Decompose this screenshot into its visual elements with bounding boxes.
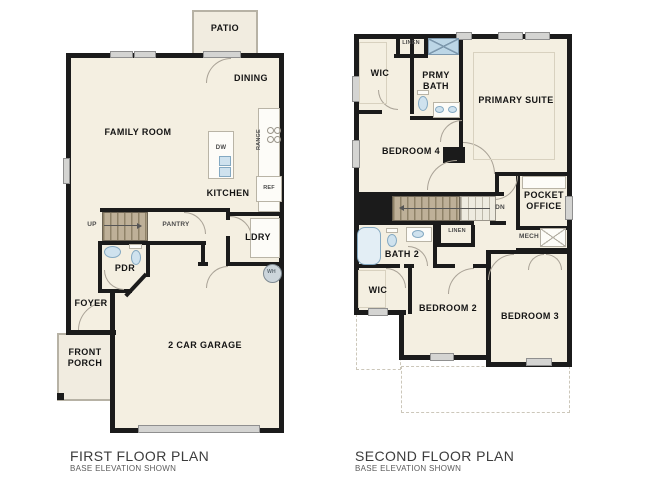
room-label-bath-2: BATH 2 xyxy=(378,249,426,260)
dashed-footprint xyxy=(356,314,401,370)
room-label-wic-bedroom2: WIC xyxy=(360,285,396,296)
room-label-linen-hall: LINEN xyxy=(440,229,474,235)
wall xyxy=(490,221,506,225)
room-label-mech: MECH xyxy=(516,234,542,241)
second-floor-caption-subtitle: BASE ELEVATION SHOWN xyxy=(355,464,461,473)
window-marker xyxy=(352,140,360,168)
sink-icon xyxy=(448,106,457,113)
wall xyxy=(433,225,437,268)
wall xyxy=(394,54,428,58)
window-marker xyxy=(498,32,523,40)
pocket-office-desk xyxy=(522,176,566,189)
toilet-icon xyxy=(418,96,428,111)
wall xyxy=(354,110,382,114)
room-label-wic-primary: WIC xyxy=(362,68,398,79)
room-label-linen-upper: LINEN xyxy=(397,41,425,47)
primary-suite-inset xyxy=(473,52,555,160)
sink-icon xyxy=(412,230,424,238)
room-label-bedroom-3: BEDROOM 3 xyxy=(490,311,570,322)
wall xyxy=(437,264,455,268)
stairs-direction-label: DN xyxy=(492,205,508,212)
room-label-primary-suite: PRIMARY SUITE xyxy=(466,95,566,106)
second-floor-caption-title: SECOND FLOOR PLAN xyxy=(355,448,514,464)
stair-void xyxy=(356,192,392,224)
room-label-pocket-office: POCKET OFFICE xyxy=(518,190,570,212)
dashed-footprint xyxy=(401,366,570,413)
room-label-bedroom-4: BEDROOM 4 xyxy=(366,146,456,157)
room-label-bedroom-2: BEDROOM 2 xyxy=(406,303,490,314)
window-marker xyxy=(525,32,550,40)
wall xyxy=(399,310,404,360)
shower-icon xyxy=(428,38,459,55)
toilet-icon xyxy=(387,234,397,247)
wall xyxy=(354,221,474,225)
floor-plan-sheet: UP DW RANGE REF WH PATIO DINING FAMILY R… xyxy=(0,0,650,487)
toilet-tank-icon xyxy=(386,228,398,233)
stairs-direction-line xyxy=(404,208,490,209)
room-label-primary-bath: PRMY BATH xyxy=(412,70,460,92)
stairs-direction-arrow xyxy=(399,205,404,211)
window-marker xyxy=(368,308,388,316)
mech-unit-icon xyxy=(540,228,566,247)
wall xyxy=(473,264,491,268)
second-floor-plan: DN WIC LINEN PRMY BATH PRIMARY SUITE BED… xyxy=(0,0,650,487)
sink-icon xyxy=(435,106,444,113)
wall xyxy=(486,250,572,254)
wall xyxy=(354,264,400,268)
window-marker xyxy=(430,353,454,361)
wall xyxy=(437,243,475,247)
window-marker xyxy=(526,358,552,366)
bedroom2-floor xyxy=(401,312,488,358)
